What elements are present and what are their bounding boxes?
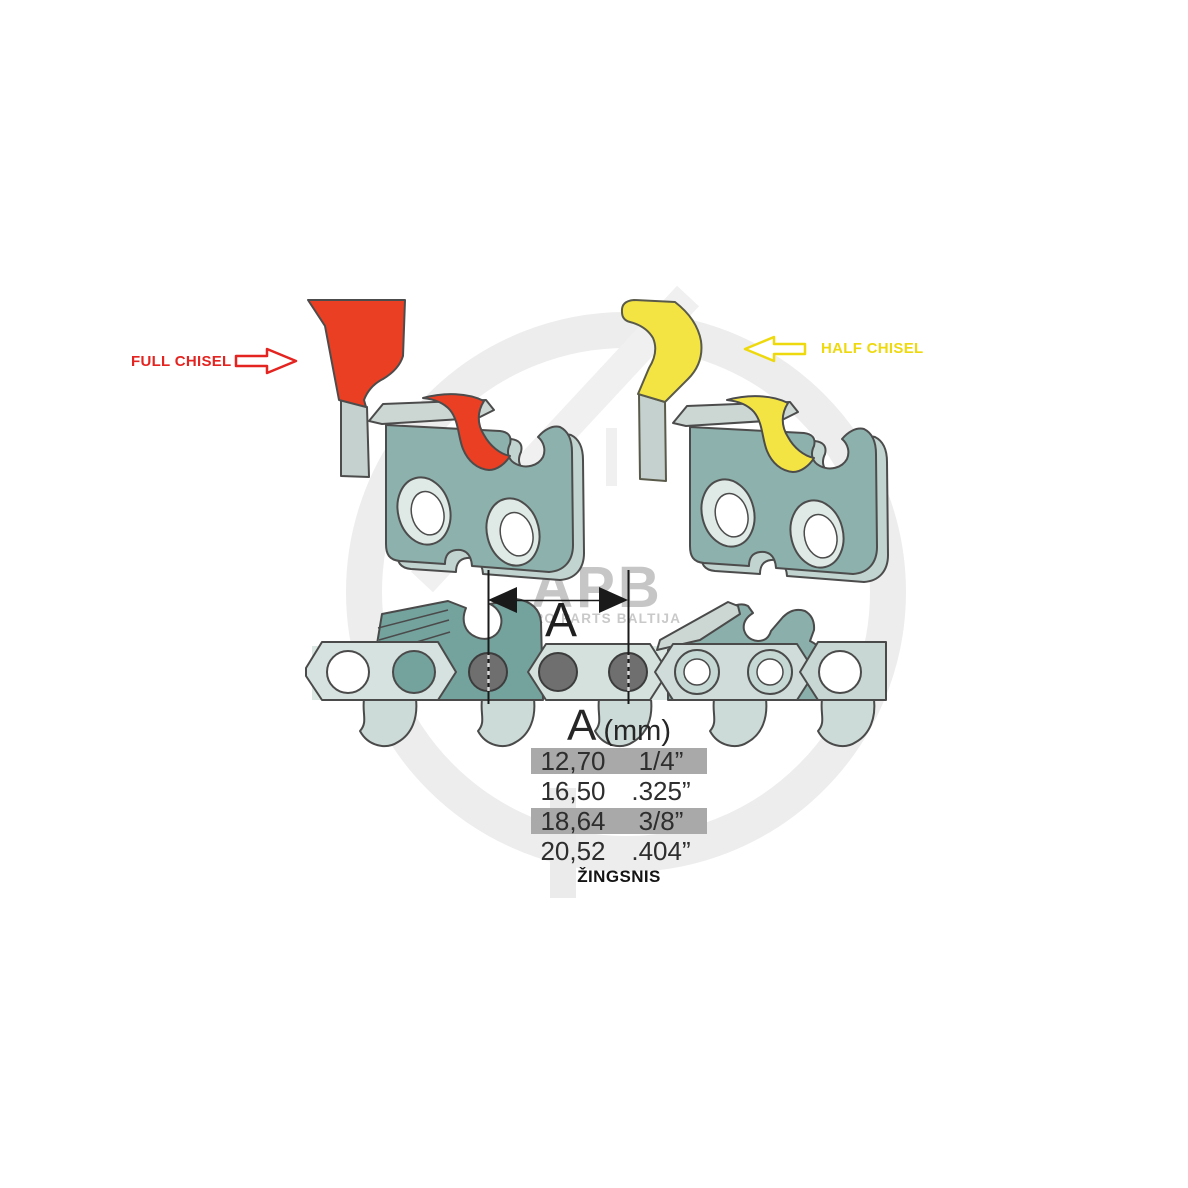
pitch-mm-value: 18,64 <box>531 808 615 834</box>
pitch-table-header: A (mm) <box>528 706 710 748</box>
chainsaw-chain-diagram: APB AGRO PARTS BALTIJA <box>0 0 1188 1188</box>
product-diagram-page: APB AGRO PARTS BALTIJA <box>0 0 1188 1188</box>
chain-hole-ring <box>675 650 719 694</box>
pitch-mm-value: 12,70 <box>531 748 615 774</box>
pitch-inch-value: .325” <box>615 778 707 804</box>
half-chisel-label: HALF CHISEL <box>821 340 923 357</box>
full-chisel-profile-leg <box>341 399 369 477</box>
chain-hole-boss <box>393 651 435 693</box>
rivet <box>539 653 577 691</box>
pitch-table-row: 12,701/4” <box>531 748 707 774</box>
full-chisel-arrow-icon <box>236 349 296 373</box>
watermark-bar-top <box>606 428 617 486</box>
pitch-mm-value: 20,52 <box>531 838 615 864</box>
pitch-table-rows: 12,701/4”16,50.325”18,643/8”20,52.404” <box>531 748 707 868</box>
pitch-table-header-symbol: A <box>567 706 596 746</box>
pitch-mm-value: 16,50 <box>531 778 615 804</box>
pitch-table-header-unit: (mm) <box>603 715 671 748</box>
full-chisel-profile-edge <box>308 300 405 407</box>
half-chisel-cutter-link-illustration <box>673 396 888 582</box>
pitch-dimension-label: A <box>536 597 586 645</box>
pitch-inch-value: 3/8” <box>615 808 707 834</box>
chain-hole-open <box>327 651 369 693</box>
pitch-table-row: 18,643/8” <box>531 808 707 834</box>
half-chisel-profile-leg <box>639 394 666 481</box>
pitch-inch-value: 1/4” <box>615 748 707 774</box>
full-chisel-label: FULL CHISEL <box>131 353 232 370</box>
pitch-table-row: 20,52.404” <box>531 838 707 864</box>
chain-hole-ring <box>748 650 792 694</box>
pitch-table-caption: ŽINGSNIS <box>528 867 710 887</box>
pitch-inch-value: .404” <box>615 838 707 864</box>
pitch-table-row: 16,50.325” <box>531 778 707 804</box>
chain-hole-open <box>819 651 861 693</box>
